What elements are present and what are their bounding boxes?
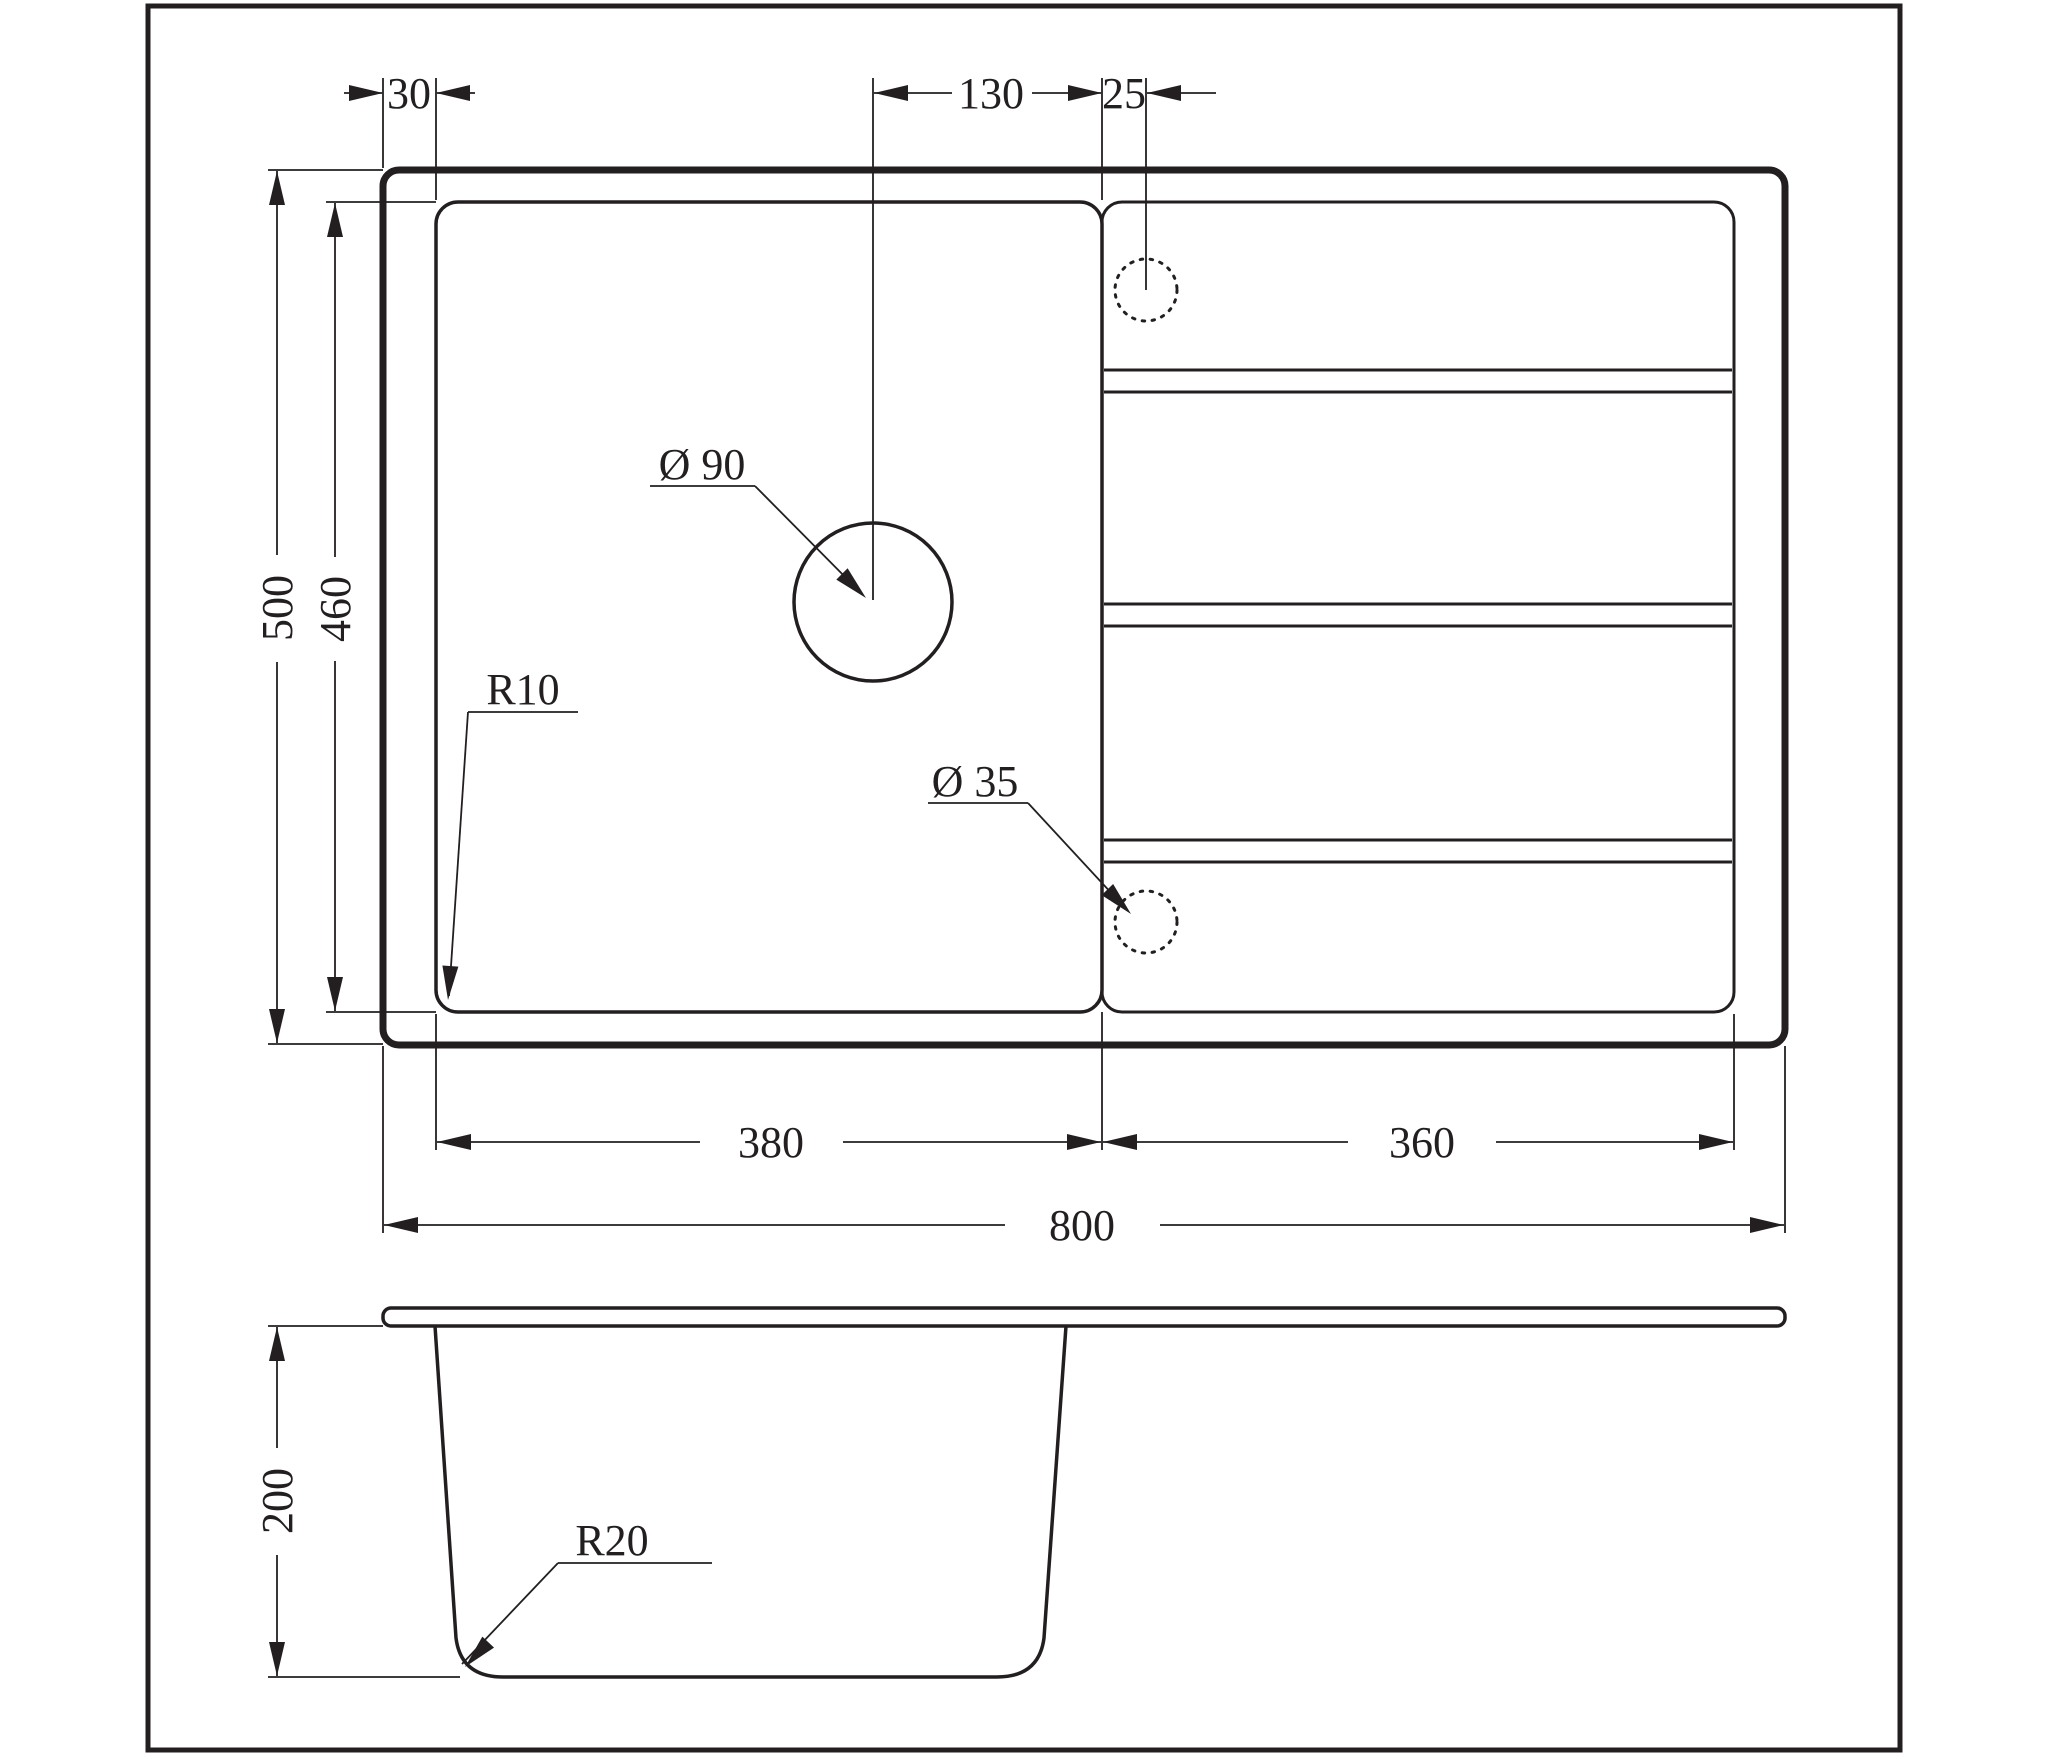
arrowhead (269, 1327, 285, 1361)
arrowhead (269, 1009, 285, 1043)
arrowhead (1068, 85, 1102, 101)
sink-outer-edge (383, 170, 1785, 1045)
dim-label-130: 130 (958, 69, 1024, 118)
dim-label-500: 500 (253, 575, 302, 641)
dimension-800: 800 (383, 1046, 1785, 1250)
sink-bowl (436, 202, 1102, 1012)
callout-r20: R20 (459, 1516, 712, 1672)
dim-label-200: 200 (253, 1468, 302, 1534)
arrowhead (384, 1217, 418, 1233)
arrowhead (436, 85, 470, 101)
tap-hole-bottom (1115, 891, 1177, 953)
dimension-380: 380 (436, 1012, 1102, 1167)
dimension-30: 30 (344, 69, 475, 200)
arrowhead (440, 966, 458, 1001)
dim-label-r20: R20 (575, 1516, 648, 1565)
callout-r10: R10 (440, 665, 578, 1001)
arrowhead (1103, 1134, 1137, 1150)
dim-label-dia35: Ø 35 (932, 757, 1019, 806)
dimension-200: 200 (253, 1326, 460, 1677)
leader-line (449, 712, 468, 996)
dim-label-25: 25 (1102, 69, 1146, 118)
drainboard (1102, 202, 1734, 1012)
callout-dia-90: Ø 90 (650, 440, 872, 604)
arrowhead (269, 171, 285, 205)
arrowhead (1147, 85, 1181, 101)
dim-label-800: 800 (1049, 1201, 1115, 1250)
arrowhead (349, 85, 383, 101)
dim-label-460: 460 (311, 576, 360, 642)
dim-label-r10: R10 (486, 665, 559, 714)
top-view (383, 170, 1785, 1045)
dim-label-30: 30 (387, 69, 431, 118)
sink-rim-section (383, 1308, 1785, 1326)
arrowhead (1750, 1217, 1784, 1233)
drainboard-grooves (1104, 370, 1732, 862)
arrowhead (327, 977, 343, 1011)
dim-label-dia90: Ø 90 (659, 440, 746, 489)
sink-technical-drawing: 30 130 25 500 460 (0, 0, 2048, 1757)
side-view (383, 1308, 1785, 1677)
arrowhead (1067, 1134, 1101, 1150)
arrowhead (437, 1134, 471, 1150)
dimension-25: 25 (1102, 69, 1216, 290)
arrowhead (269, 1642, 285, 1676)
arrowhead (327, 203, 343, 237)
arrowhead (459, 1637, 494, 1673)
bowl-section (435, 1326, 1066, 1677)
page-border (148, 6, 1900, 1750)
callout-dia-35: Ø 35 (928, 757, 1137, 920)
dimension-130: 130 (873, 69, 1102, 600)
dimension-360: 360 (1103, 1014, 1734, 1167)
dim-label-380: 380 (738, 1118, 804, 1167)
dimension-460: 460 (311, 202, 436, 1012)
arrowhead (874, 85, 908, 101)
dim-label-360: 360 (1389, 1118, 1455, 1167)
arrowhead (1699, 1134, 1733, 1150)
